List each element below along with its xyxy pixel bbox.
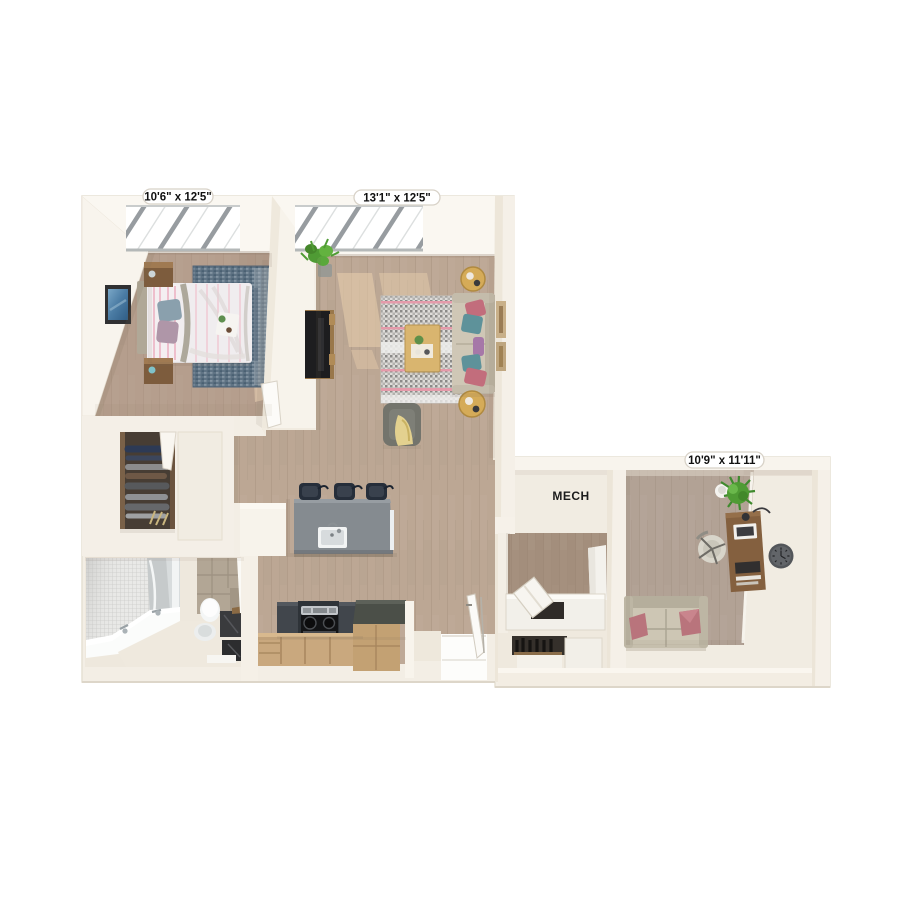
svg-text:MECH: MECH — [552, 489, 589, 503]
svg-text:13'1" x 12'5": 13'1" x 12'5" — [363, 193, 431, 205]
svg-text:10'6" x 12'5": 10'6" x 12'5" — [144, 192, 212, 204]
svg-text:10'9" x 11'11": 10'9" x 11'11" — [688, 455, 761, 467]
